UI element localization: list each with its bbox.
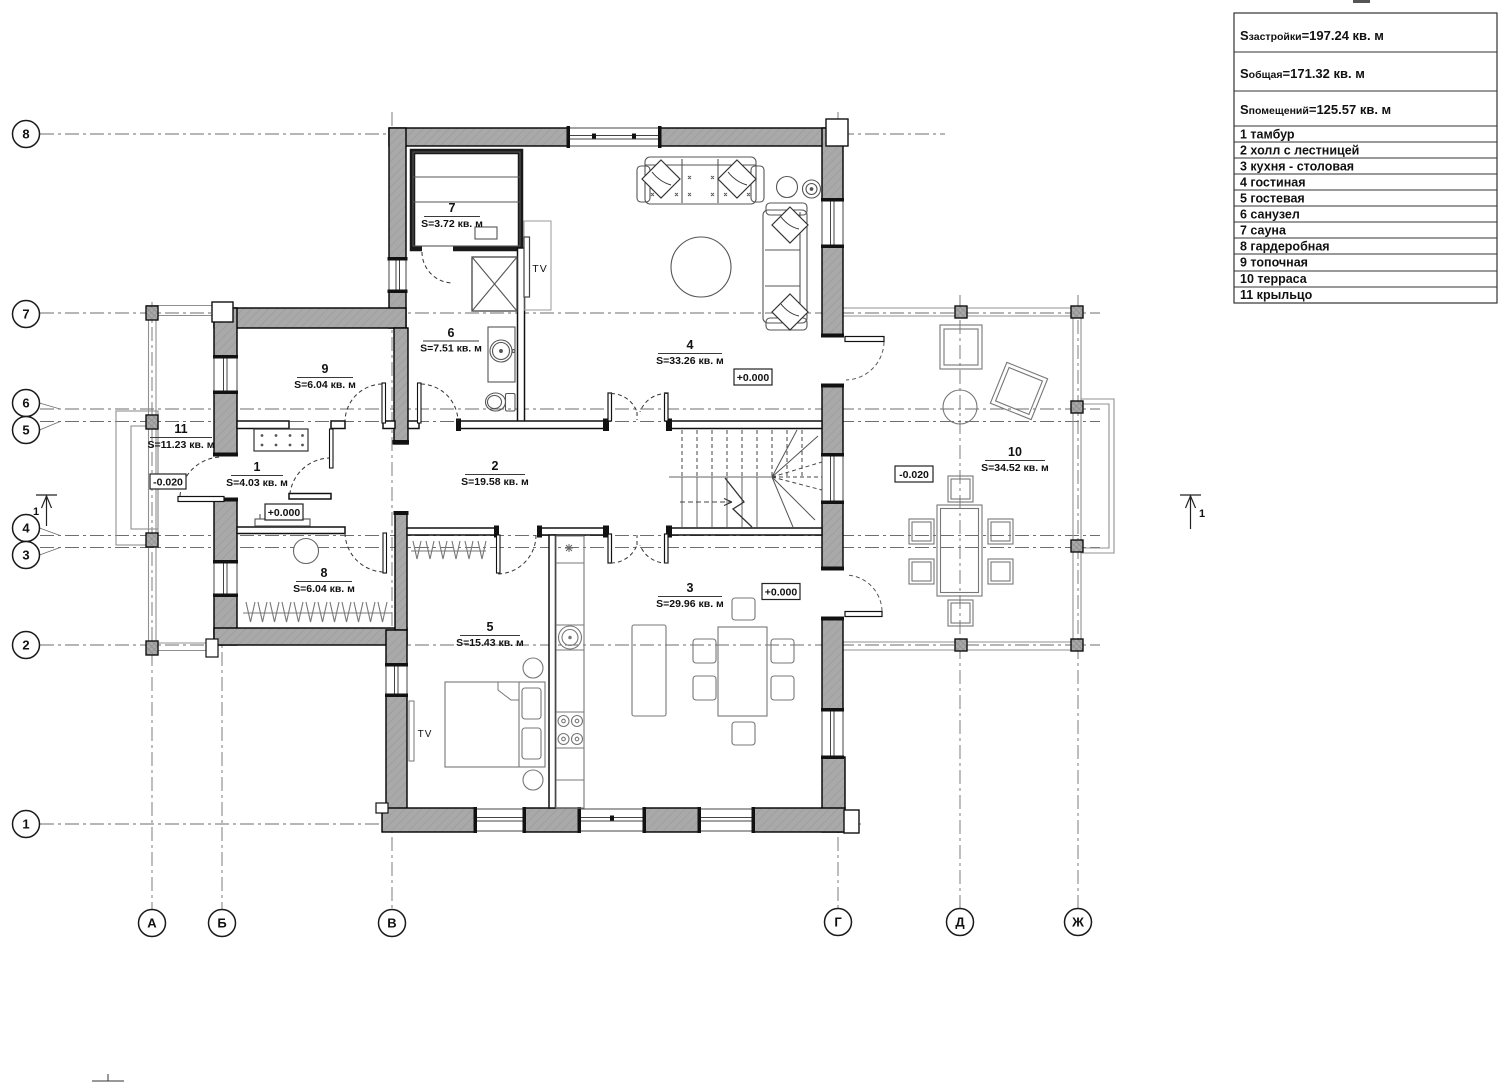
svg-text:-0.020: -0.020 [153,477,183,489]
svg-text:S=33.26 кв. м: S=33.26 кв. м [656,355,724,367]
svg-text:6: 6 [448,326,455,340]
svg-text:Ж: Ж [1071,915,1084,930]
svg-text:2: 2 [492,459,499,473]
svg-text:10 терраса: 10 терраса [1240,272,1308,286]
svg-text:8 гардеробная: 8 гардеробная [1240,240,1330,254]
svg-text:S=29.96 кв. м: S=29.96 кв. м [656,598,724,610]
svg-text:TV: TV [418,729,433,740]
svg-text:S=6.04 кв. м: S=6.04 кв. м [294,379,356,391]
svg-text:6: 6 [22,396,29,411]
svg-text:2 холл с лестницей: 2 холл с лестницей [1240,144,1359,158]
svg-text:+0.000: +0.000 [737,372,770,384]
svg-text:S=11.23 кв. м: S=11.23 кв. м [147,439,214,451]
svg-text:Г: Г [834,915,842,930]
svg-text:6 санузел: 6 санузел [1240,208,1300,222]
svg-text:S=6.04 кв. м: S=6.04 кв. м [293,583,355,595]
svg-text:Б: Б [217,916,226,931]
svg-text:В: В [387,916,396,931]
svg-text:7: 7 [22,307,29,322]
svg-text:5 гостевая: 5 гостевая [1240,192,1305,206]
svg-text:4: 4 [22,521,30,536]
svg-text:1: 1 [22,817,29,832]
svg-text:3 кухня - столовая: 3 кухня - столовая [1240,160,1354,174]
svg-text:TV: TV [532,263,547,275]
svg-text:А: А [147,916,157,931]
svg-text:3: 3 [687,581,694,595]
svg-text:4 гостиная: 4 гостиная [1240,176,1306,190]
svg-text:S=19.58 кв. м: S=19.58 кв. м [461,476,529,488]
svg-text:S=15.43 кв. м: S=15.43 кв. м [456,637,524,649]
svg-text:Sзастройки=197.24 кв. м: Sзастройки=197.24 кв. м [1240,28,1384,43]
svg-text:-0.020: -0.020 [899,469,929,481]
svg-text:7: 7 [449,201,456,215]
svg-text:+0.000: +0.000 [268,507,301,519]
svg-text:9 топочная: 9 топочная [1240,256,1308,270]
svg-text:1: 1 [33,506,39,518]
svg-text:9: 9 [322,362,329,376]
svg-text:Sпомещений=125.57 кв. м: Sпомещений=125.57 кв. м [1240,102,1391,117]
svg-text:1: 1 [254,460,261,474]
svg-text:S=7.51 кв. м: S=7.51 кв. м [420,343,482,355]
svg-text:S=3.72 кв. м: S=3.72 кв. м [421,218,483,230]
svg-text:2: 2 [22,638,29,653]
svg-text:11 крыльцо: 11 крыльцо [1240,288,1313,302]
svg-text:4: 4 [687,338,694,352]
svg-text:5: 5 [22,423,29,438]
svg-text:1 тамбур: 1 тамбур [1240,128,1295,142]
svg-text:S=34.52 кв. м: S=34.52 кв. м [981,462,1049,474]
svg-text:+0.000: +0.000 [765,587,798,599]
svg-text:Д: Д [955,915,965,930]
svg-text:10: 10 [1008,445,1022,459]
svg-text:5: 5 [487,620,494,634]
svg-text:1: 1 [1199,508,1205,520]
svg-text:Sобщая=171.32 кв. м: Sобщая=171.32 кв. м [1240,66,1365,81]
svg-text:3: 3 [22,548,29,563]
svg-text:7 сауна: 7 сауна [1240,224,1287,238]
svg-text:8: 8 [22,127,29,142]
svg-text:8: 8 [321,566,328,580]
svg-text:11: 11 [174,422,187,436]
svg-text:S=4.03 кв. м: S=4.03 кв. м [226,477,288,489]
